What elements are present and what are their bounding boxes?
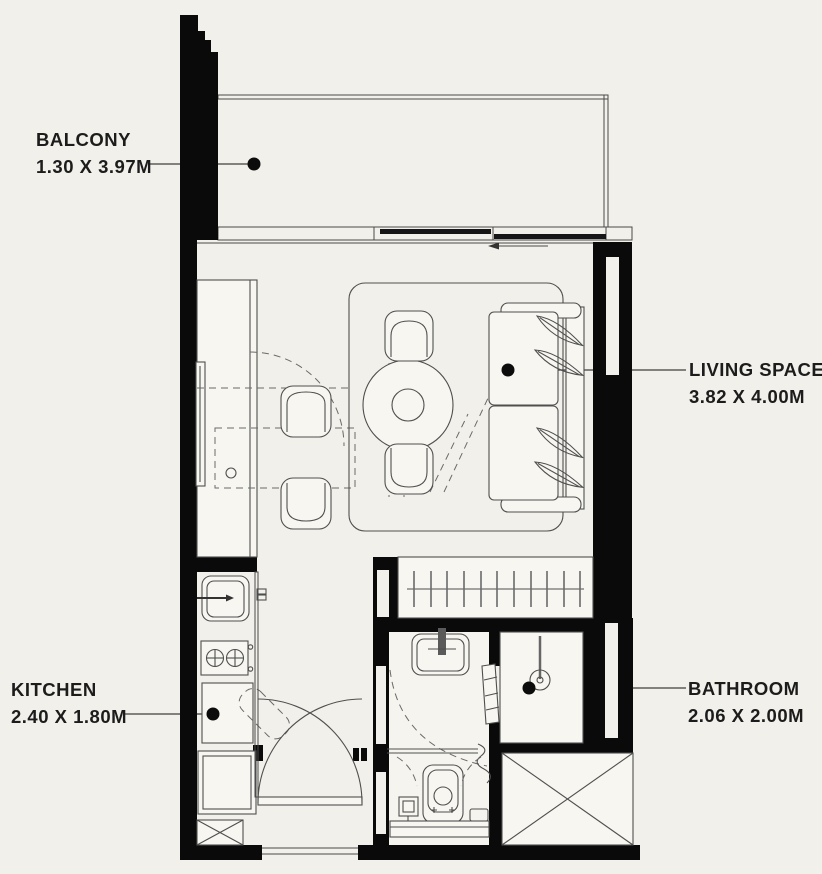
bathroom-dims: 2.06 X 2.00M — [688, 702, 804, 729]
sofa-seat-cushion — [489, 312, 558, 405]
stove — [201, 641, 253, 675]
sofa-seat-cushion — [489, 406, 558, 500]
balcony-leader-dot — [248, 158, 261, 171]
living-leader-dot — [502, 364, 515, 377]
kitchen-leader-dot — [207, 708, 220, 721]
living-name: LIVING SPACE — [689, 356, 822, 383]
shower — [500, 632, 583, 743]
kitchen-label: KITCHEN 2.40 X 1.80M — [11, 676, 127, 730]
dining-chair — [385, 311, 433, 361]
fridge — [198, 751, 256, 814]
living-dims: 3.82 X 4.00M — [689, 383, 822, 410]
counter — [197, 280, 257, 557]
bathroom-leader-dot — [523, 682, 536, 695]
door-jamb-block-2 — [361, 748, 367, 761]
wc-shower-divider — [489, 632, 500, 666]
bathroom-name: BATHROOM — [688, 675, 804, 702]
living-label: LIVING SPACE 3.82 X 4.00M — [689, 356, 822, 410]
door-jamb-block — [353, 748, 359, 761]
floor-plan: BALCONY 1.30 X 3.97M LIVING SPACE 3.82 X… — [0, 0, 822, 874]
shaft-left-wall — [489, 743, 502, 845]
balcony-name: BALCONY — [36, 126, 152, 153]
balcony-dims: 1.30 X 3.97M — [36, 153, 152, 180]
dining-table — [363, 360, 453, 450]
kitchen-shaft — [197, 820, 243, 845]
wardrobe — [398, 557, 593, 618]
bathroom-sink — [412, 628, 469, 675]
kitchen-name: KITCHEN — [11, 676, 127, 703]
dining-chair — [385, 444, 433, 494]
bottom-wall-right — [358, 845, 640, 860]
bottom-wall-left — [180, 845, 262, 860]
shaft-top-wall — [502, 743, 633, 753]
service-shaft — [502, 753, 633, 845]
side-chair — [281, 386, 331, 437]
bathroom-label: BATHROOM 2.06 X 2.00M — [688, 675, 804, 729]
side-chair — [281, 478, 331, 529]
sofa — [489, 303, 584, 512]
kitchen-dims: 2.40 X 1.80M — [11, 703, 127, 730]
bathroom-top-wall — [373, 618, 593, 632]
balcony-label: BALCONY 1.30 X 3.97M — [36, 126, 152, 180]
wc-threshold — [390, 821, 489, 837]
